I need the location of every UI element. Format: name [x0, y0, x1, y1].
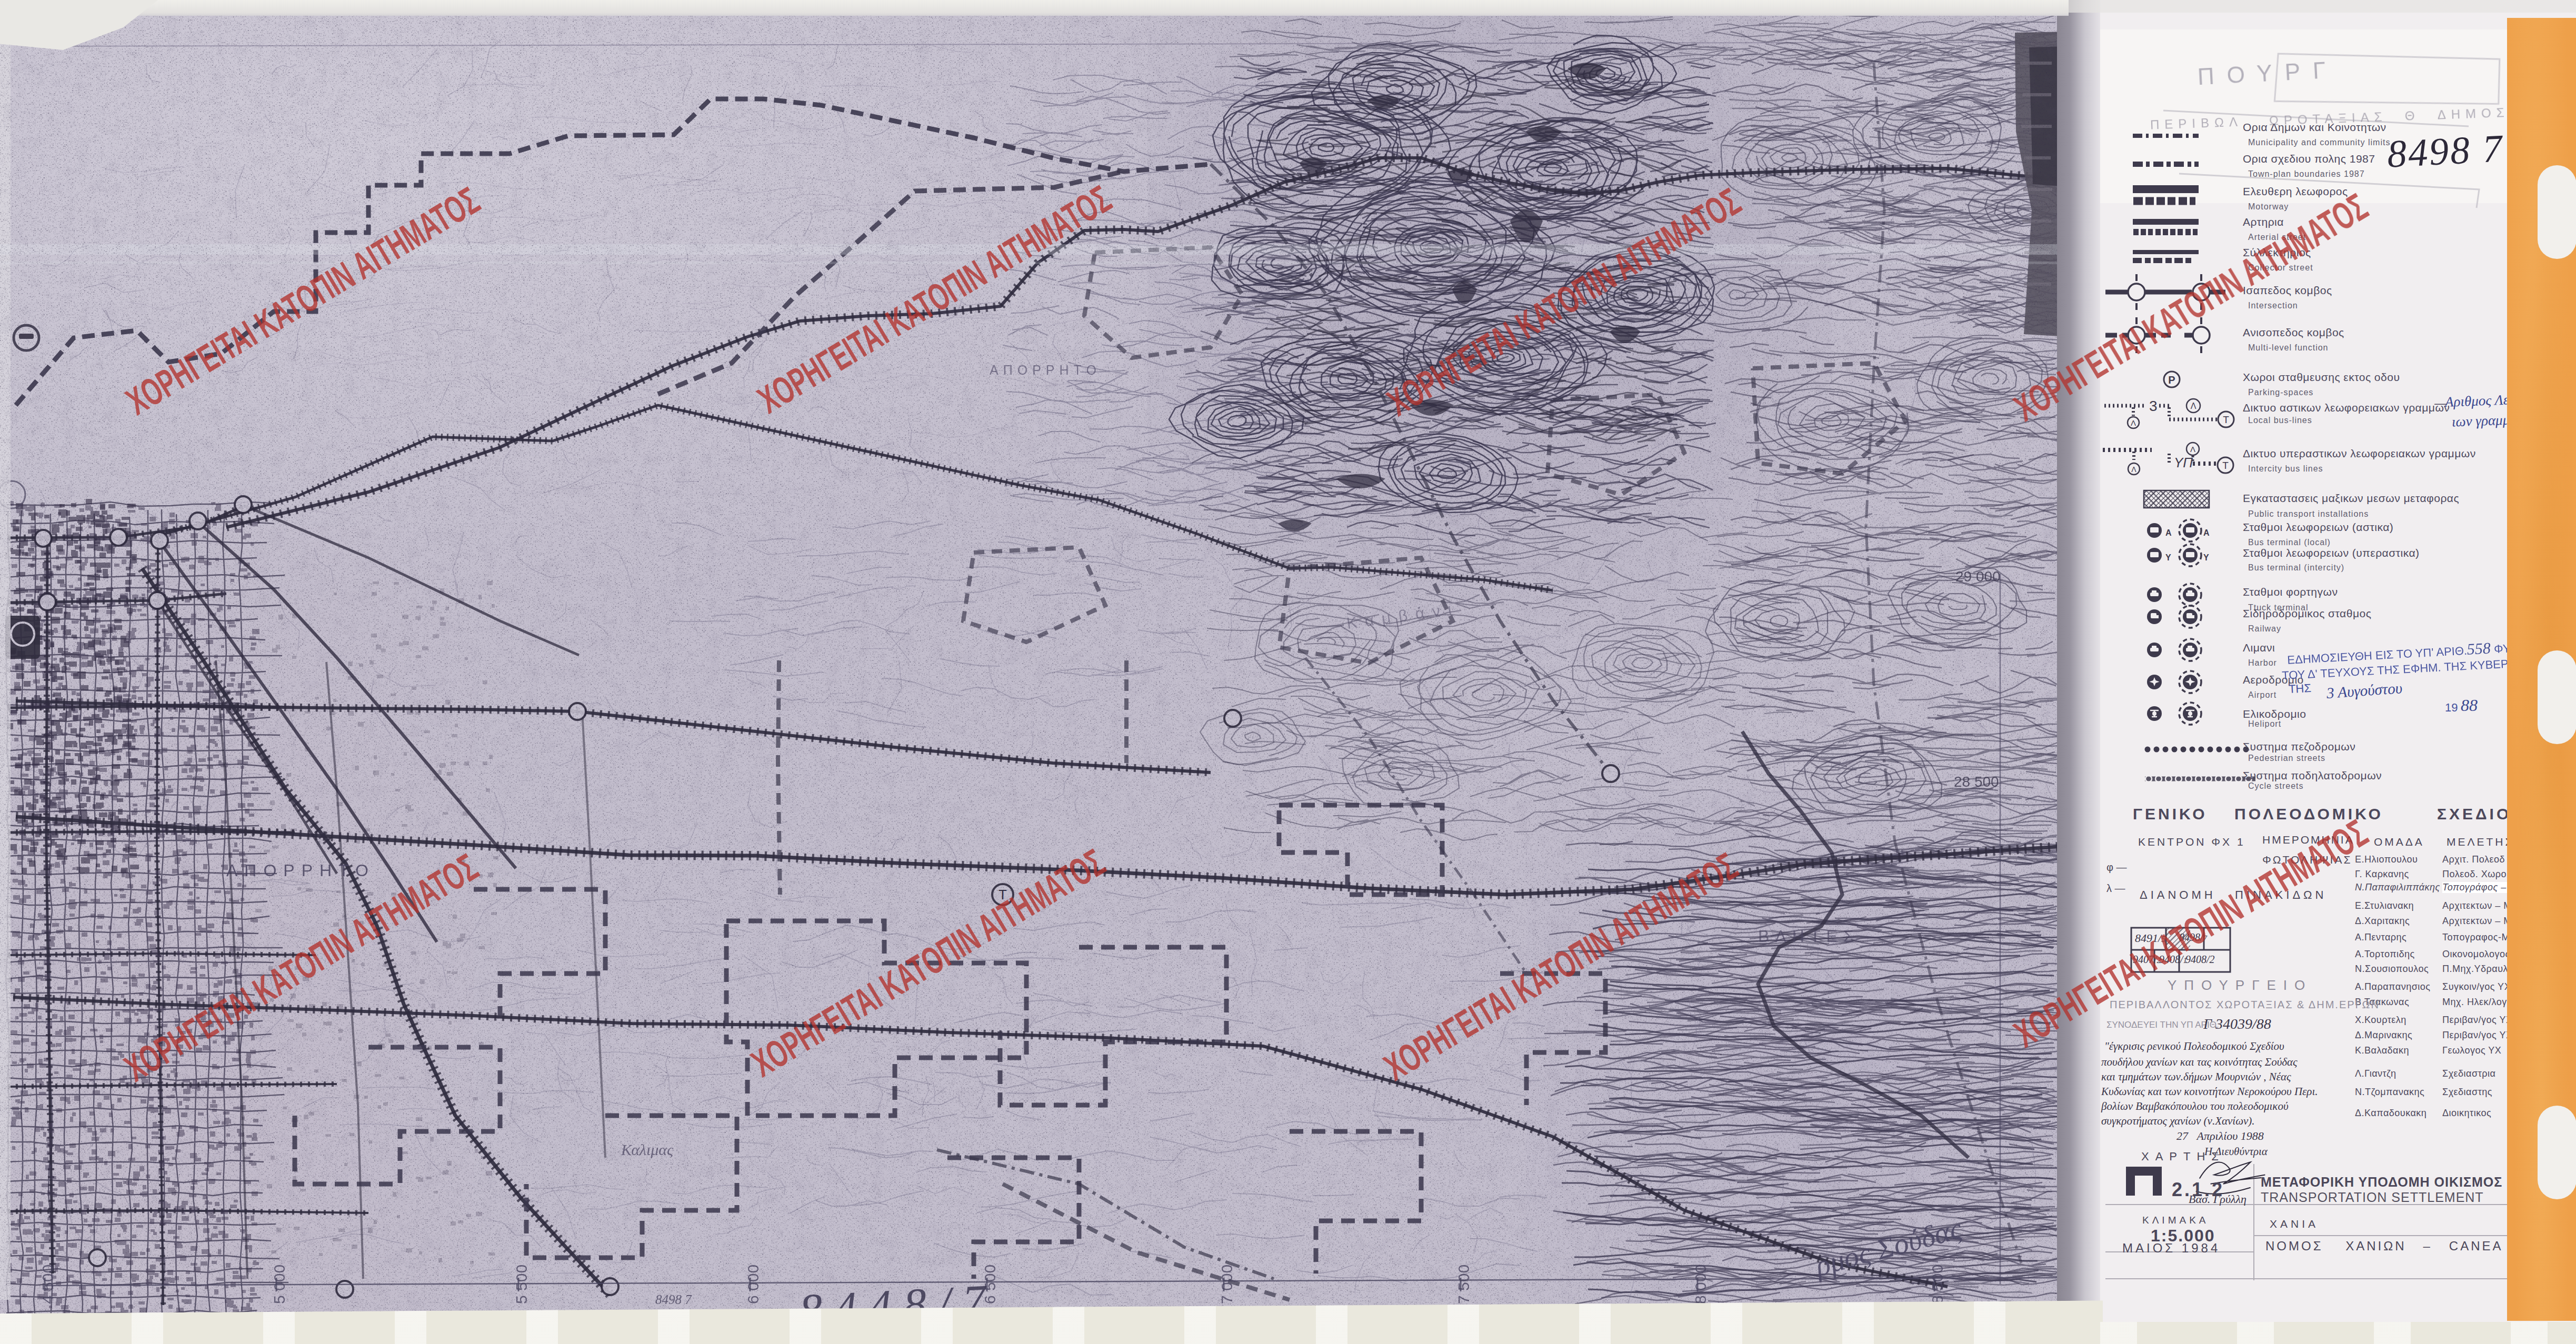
svg-text:A: A	[2165, 528, 2172, 537]
svg-text:Λ: Λ	[2191, 402, 2196, 410]
svg-text:Y: Y	[2203, 553, 2209, 562]
svg-text:ΥΠ: ΥΠ	[2174, 455, 2193, 470]
svg-text:Λ: Λ	[2131, 418, 2136, 427]
svg-text:A: A	[2203, 528, 2210, 537]
svg-text:Τ: Τ	[2223, 414, 2229, 425]
svg-text:Y: Y	[2165, 553, 2171, 562]
svg-text:Λ: Λ	[2190, 445, 2195, 454]
svg-text:3: 3	[2149, 398, 2158, 414]
svg-text:ΠΟΥΡΓ: ΠΟΥΡΓ	[2197, 56, 2339, 89]
svg-text:Λ: Λ	[2131, 465, 2136, 474]
svg-text:P: P	[2168, 374, 2175, 386]
svg-text:Τ: Τ	[2222, 460, 2229, 471]
